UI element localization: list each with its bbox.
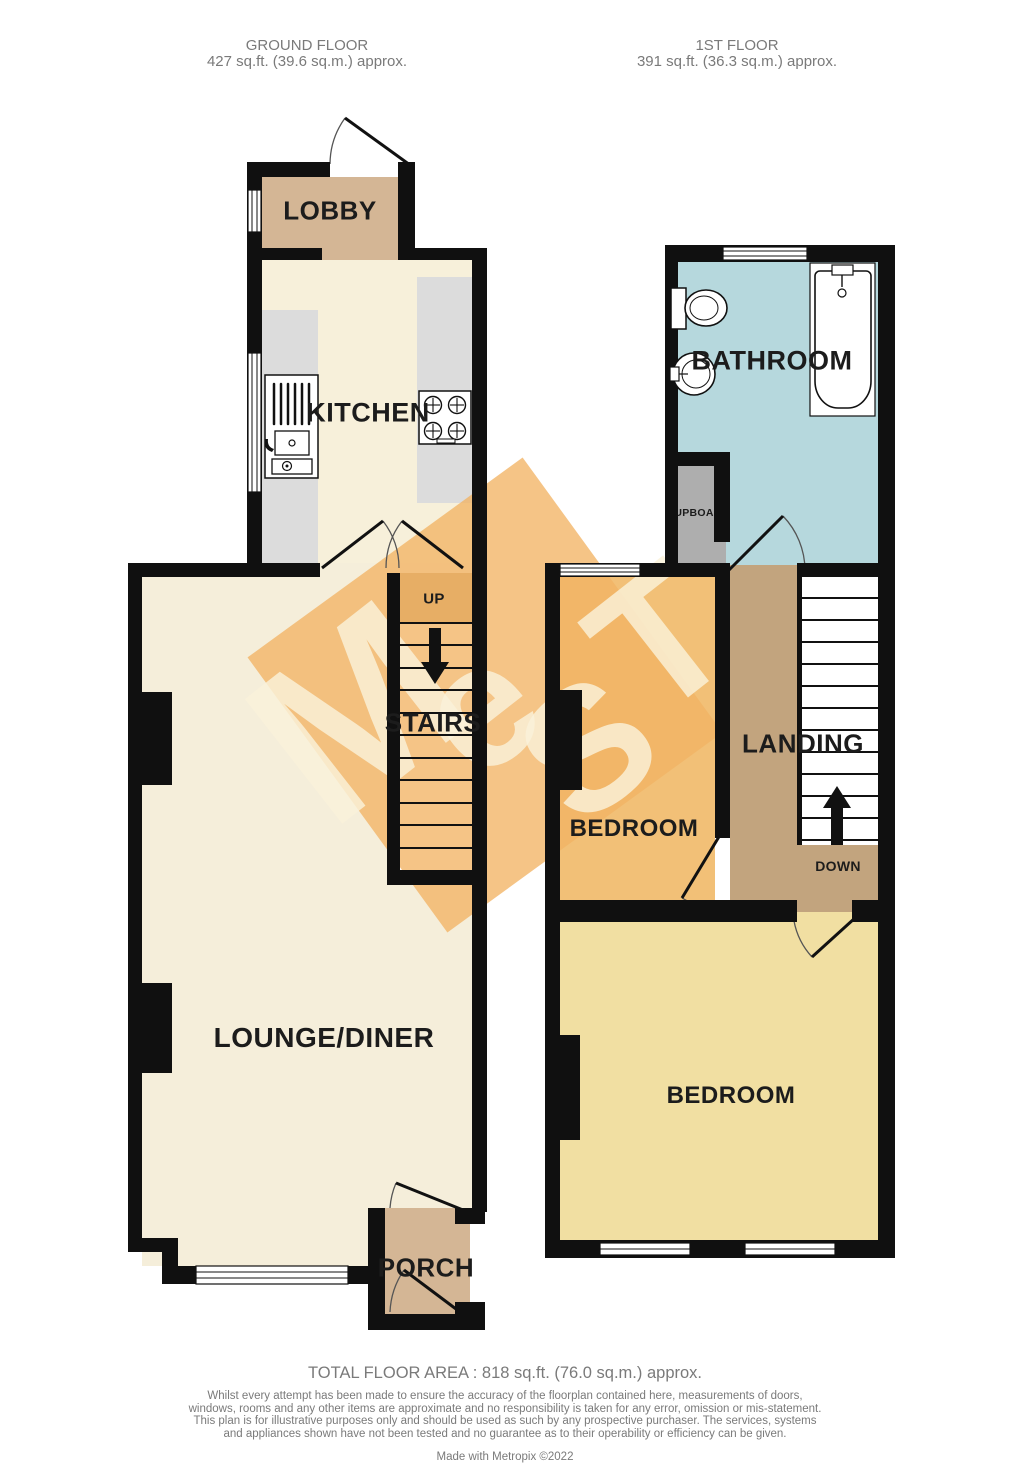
ground-floor-header: GROUND FLOOR 427 sq.ft. (39.6 sq.m.) app… <box>137 38 477 70</box>
ground-floor-walls <box>128 162 487 1330</box>
label-porch: PORCH <box>378 1253 474 1284</box>
lobby-window <box>248 190 261 232</box>
floorplan-linework <box>0 0 1020 1466</box>
ground-stairs-up-arrow <box>421 628 449 684</box>
ground-floor-area: 427 sq.ft. (39.6 sq.m.) approx. <box>137 54 477 70</box>
label-lounge-diner: LOUNGE/DINER <box>214 1022 435 1054</box>
ground-floor-title: GROUND FLOOR <box>137 38 477 54</box>
label-landing: LANDING <box>742 729 864 760</box>
disclaimer-text: Whilst every attempt has been made to en… <box>185 1390 825 1440</box>
label-lobby: LOBBY <box>283 196 377 227</box>
bedroom-front-door <box>682 835 720 908</box>
bathroom-window <box>723 247 807 260</box>
label-up: UP <box>423 591 444 608</box>
first-floor-area: 391 sq.ft. (36.3 sq.m.) approx. <box>567 54 907 70</box>
label-stairs: STAIRS <box>385 708 481 739</box>
lounge-bay-window <box>196 1266 348 1284</box>
bedroom-front-window <box>560 564 640 576</box>
toilet-icon <box>671 288 727 329</box>
floorplan-canvas: GROUND FLOOR 427 sq.ft. (39.6 sq.m.) app… <box>0 0 1020 1466</box>
bathroom-door <box>727 516 805 572</box>
label-bedroom-front: BEDROOM <box>570 815 699 843</box>
first-floor-header: 1ST FLOOR 391 sq.ft. (36.3 sq.m.) approx… <box>567 38 907 70</box>
label-bathroom: BATHROOM <box>692 346 853 377</box>
first-stairs-down-arrow <box>823 786 851 845</box>
label-kitchen: KITCHEN <box>306 398 430 429</box>
bedroom-back-window-right <box>745 1243 835 1255</box>
bedroom-back-window-left <box>600 1243 690 1255</box>
lobby-entrance-door <box>330 118 410 165</box>
porch-inner-door <box>390 1183 468 1212</box>
kitchen-double-doors <box>322 521 463 568</box>
label-down: DOWN <box>815 858 861 874</box>
label-bedroom-back: BEDROOM <box>667 1082 796 1110</box>
total-floor-area: TOTAL FLOOR AREA : 818 sq.ft. (76.0 sq.m… <box>155 1364 855 1383</box>
bathtub-icon <box>810 263 875 416</box>
metropix-credit: Made with Metropix ©2022 <box>155 1451 855 1463</box>
first-floor-title: 1ST FLOOR <box>567 38 907 54</box>
kitchen-window <box>248 353 261 492</box>
